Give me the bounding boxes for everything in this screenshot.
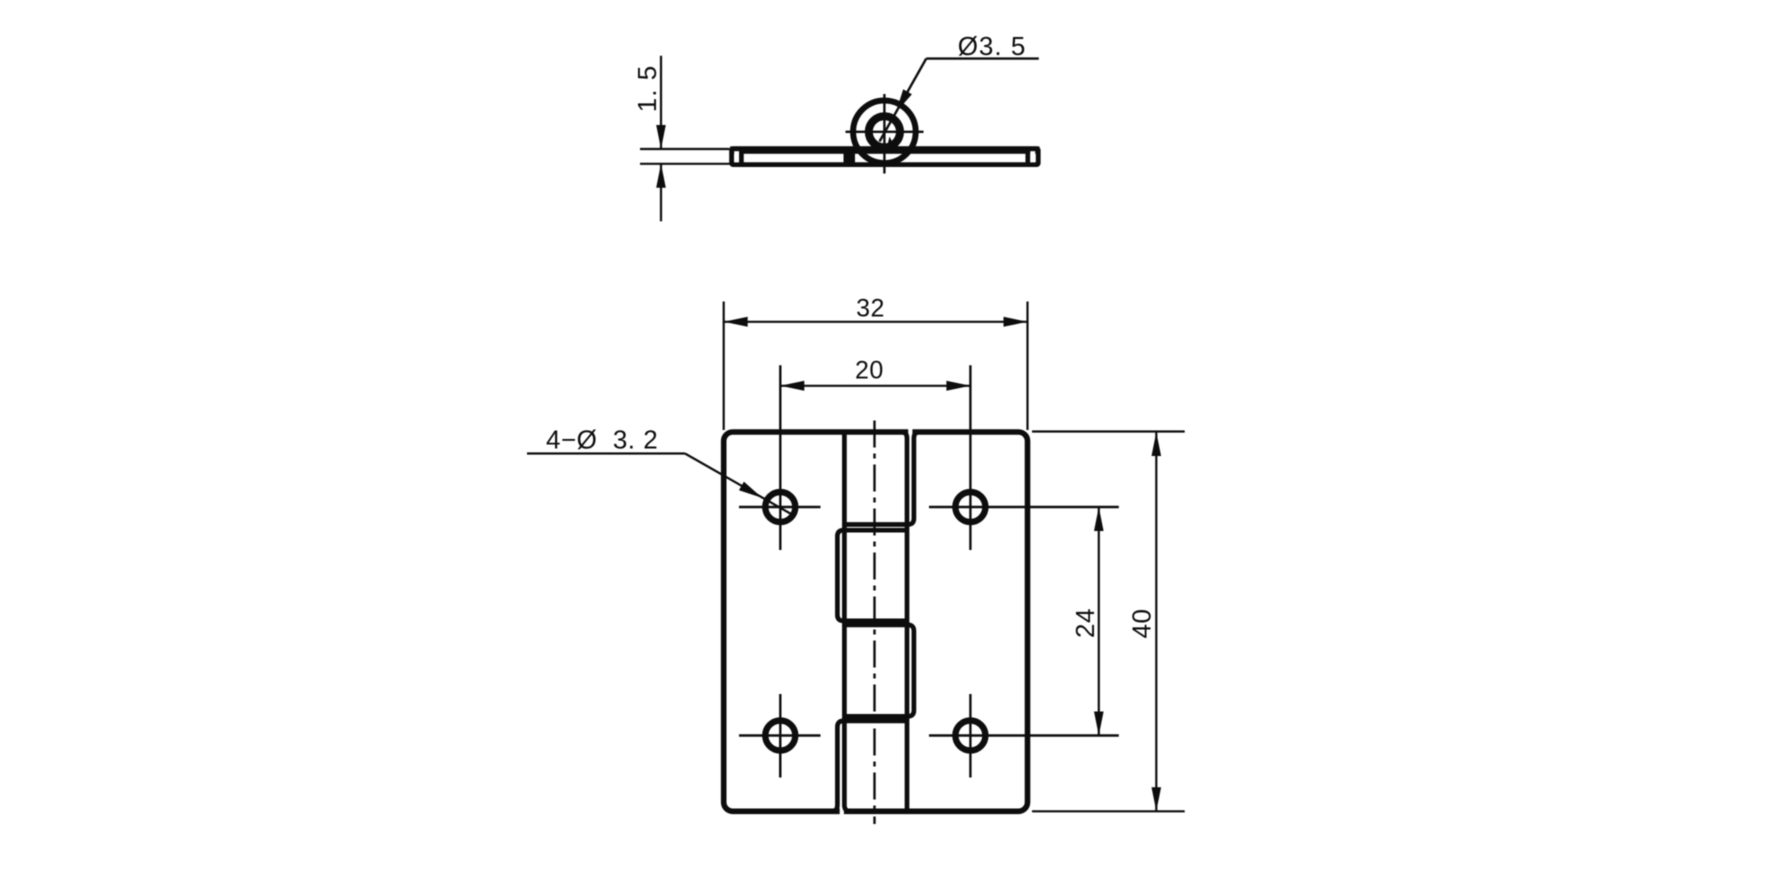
svg-text:4−Ø 3. 2: 4−Ø 3. 2: [546, 424, 658, 454]
svg-text:20: 20: [855, 357, 884, 385]
svg-text:24: 24: [1070, 608, 1100, 638]
svg-text:1. 5: 1. 5: [632, 65, 662, 112]
svg-text:32: 32: [856, 295, 885, 323]
svg-text:40: 40: [1127, 609, 1157, 639]
svg-text:Ø3. 5: Ø3. 5: [958, 31, 1027, 61]
